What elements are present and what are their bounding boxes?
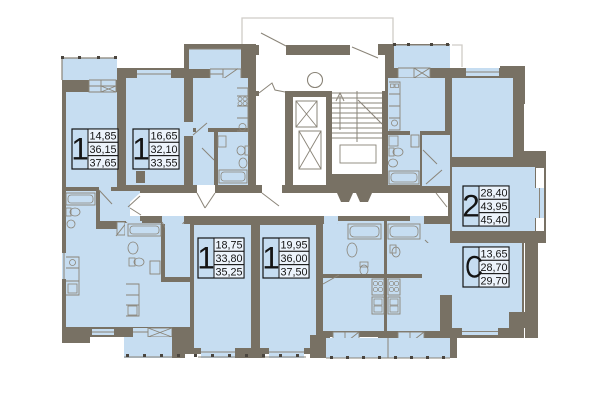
svg-text:37,50: 37,50 — [280, 266, 307, 278]
svg-text:36,15: 36,15 — [89, 144, 116, 156]
svg-text:33,55: 33,55 — [150, 157, 177, 169]
svg-text:36,00: 36,00 — [280, 253, 307, 265]
svg-text:29,70: 29,70 — [480, 275, 507, 287]
svg-text:1: 1 — [197, 240, 215, 276]
svg-text:35,25: 35,25 — [215, 266, 242, 278]
svg-text:28,40: 28,40 — [480, 188, 507, 200]
svg-text:43,95: 43,95 — [480, 201, 507, 213]
svg-text:1: 1 — [132, 131, 150, 167]
svg-text:2: 2 — [462, 188, 480, 224]
svg-text:37,65: 37,65 — [89, 157, 116, 169]
svg-text:28,70: 28,70 — [480, 262, 507, 274]
svg-text:45,40: 45,40 — [480, 214, 507, 226]
svg-text:33,80: 33,80 — [215, 253, 242, 265]
svg-text:1: 1 — [262, 240, 280, 276]
svg-text:14,85: 14,85 — [89, 131, 116, 143]
svg-text:C: C — [465, 249, 483, 285]
svg-text:18,75: 18,75 — [215, 240, 242, 252]
svg-text:19,95: 19,95 — [280, 240, 307, 252]
svg-text:13,65: 13,65 — [480, 249, 507, 261]
svg-text:32,10: 32,10 — [150, 144, 177, 156]
svg-text:1: 1 — [71, 131, 89, 167]
svg-text:16,65: 16,65 — [150, 131, 177, 143]
